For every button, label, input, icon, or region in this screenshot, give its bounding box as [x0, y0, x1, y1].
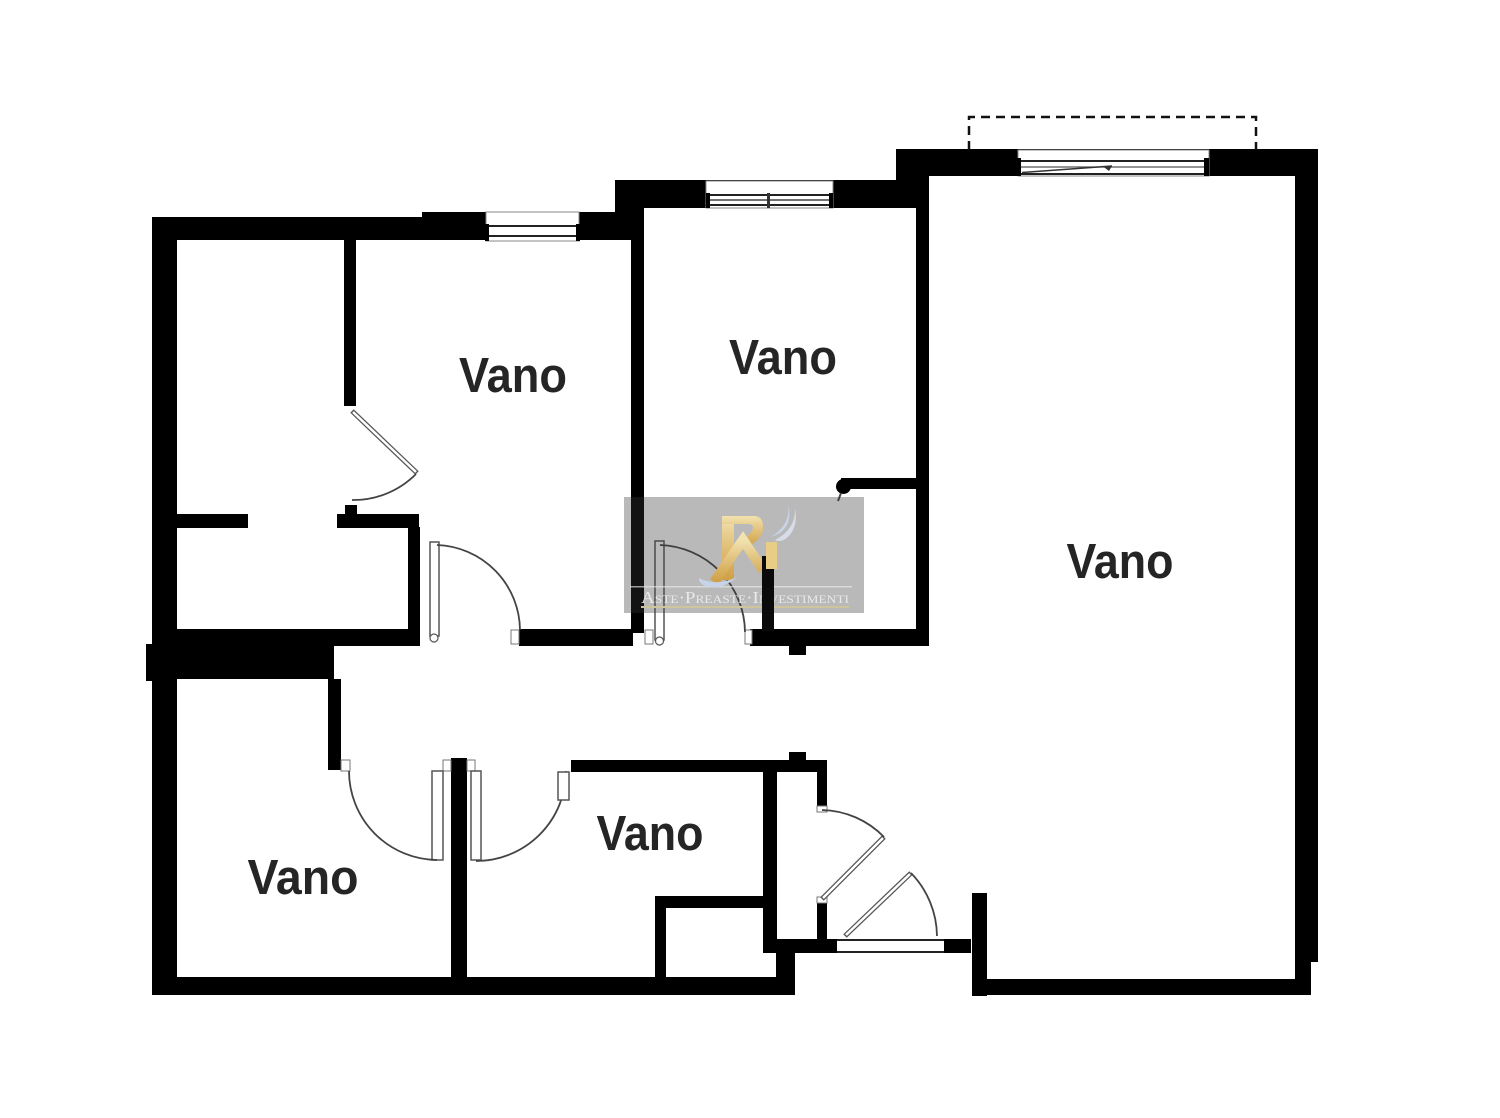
svg-text:Vano: Vano: [459, 349, 567, 403]
svg-text:Vano: Vano: [248, 851, 359, 905]
svg-text:Vano: Vano: [597, 807, 704, 861]
svg-text:Aste·Preaste·Investimenti: Aste·Preaste·Investimenti: [641, 588, 849, 607]
svg-text:Vano: Vano: [729, 331, 837, 385]
svg-text:Vano: Vano: [1067, 535, 1174, 589]
